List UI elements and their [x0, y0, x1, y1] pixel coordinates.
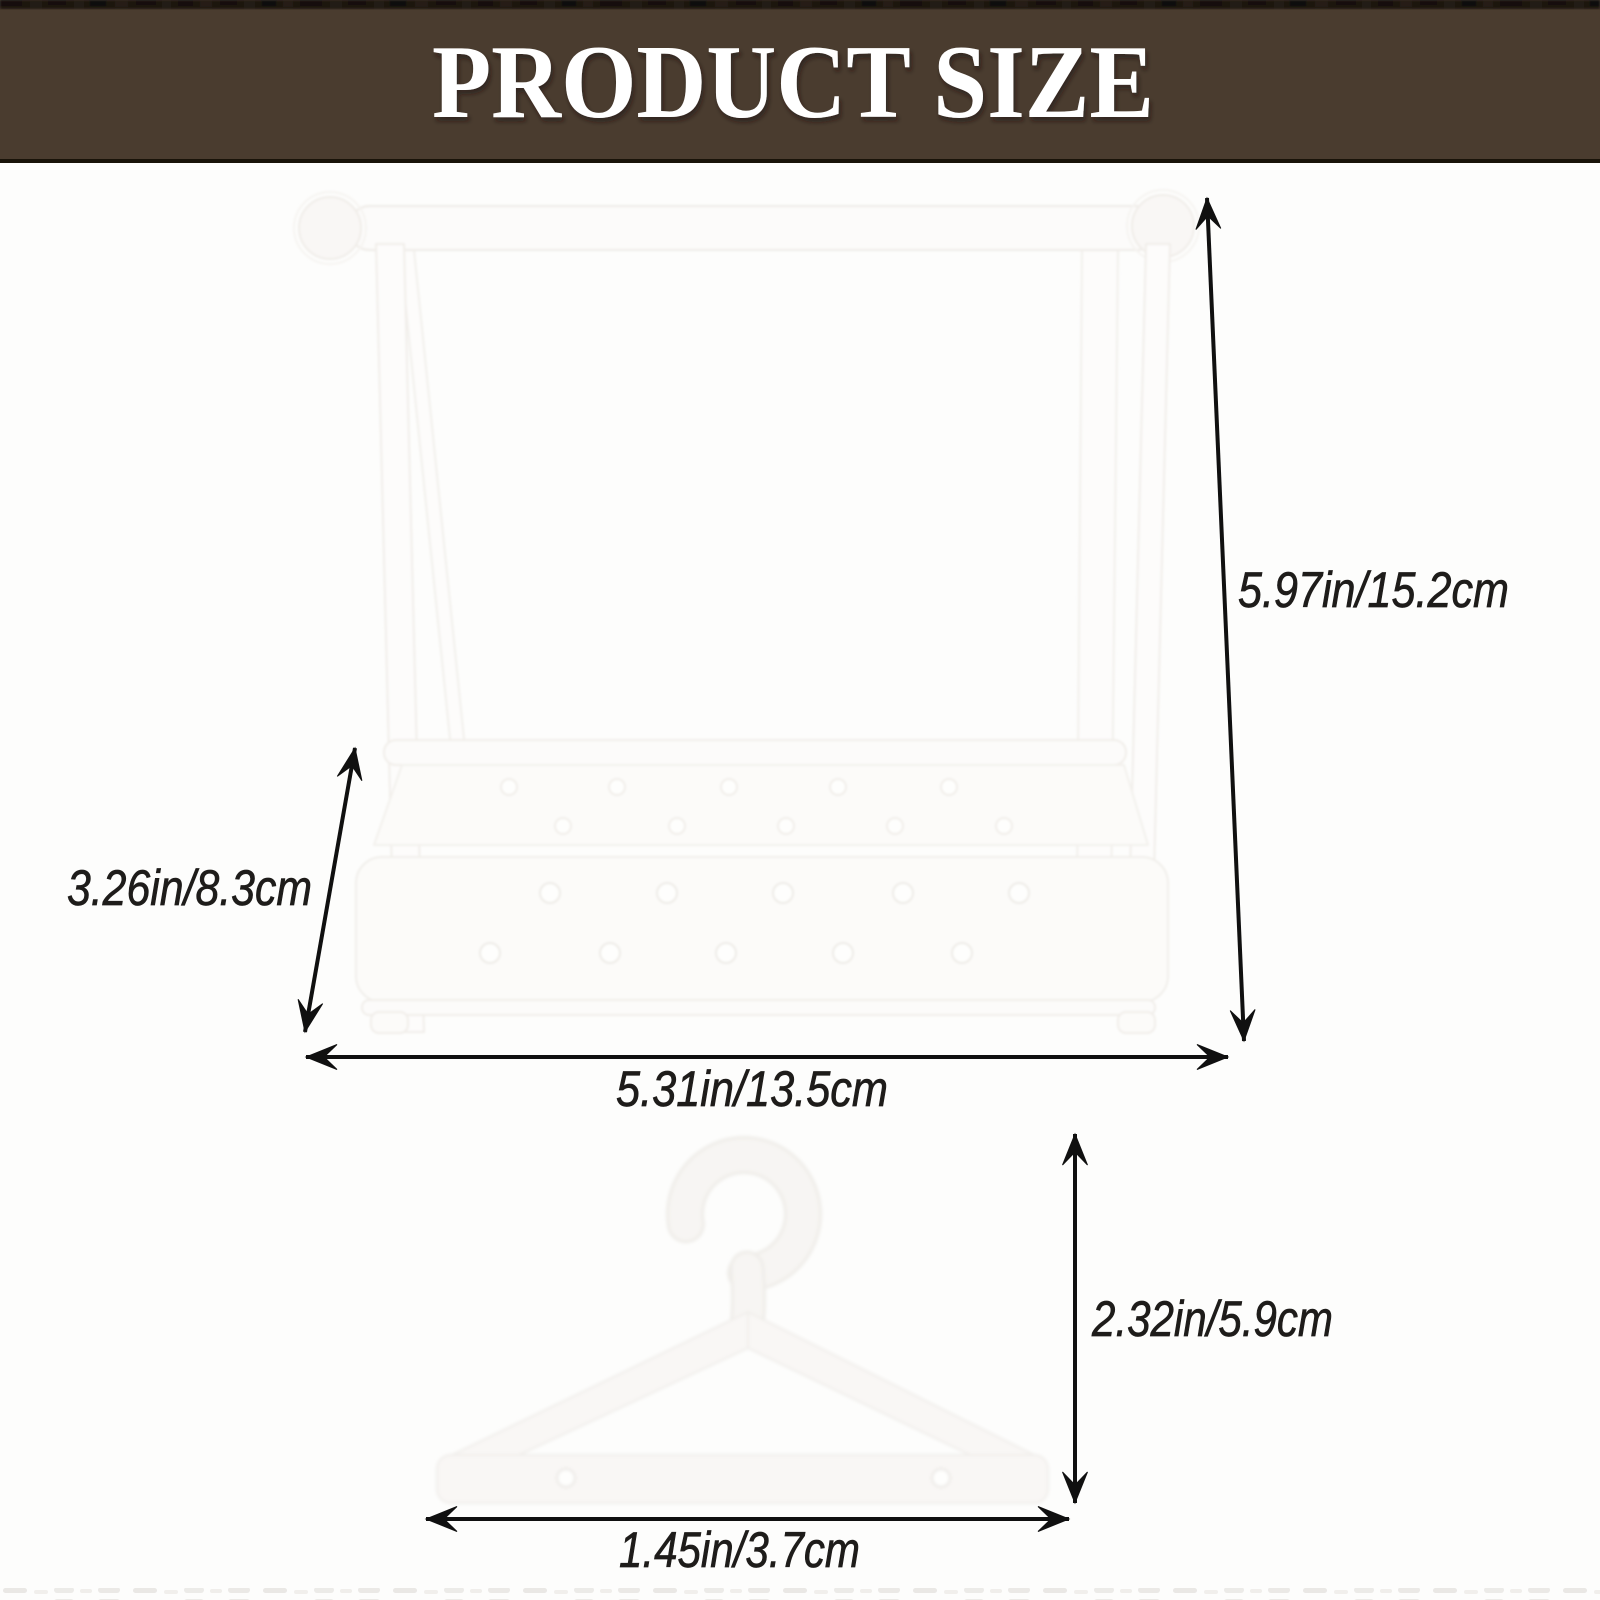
- svg-text:2.32in/5.9cm: 2.32in/5.9cm: [1091, 1291, 1333, 1347]
- svg-text:5.31in/13.5cm: 5.31in/13.5cm: [616, 1061, 888, 1117]
- svg-text:3.26in/8.3cm: 3.26in/8.3cm: [67, 860, 312, 916]
- svg-text:PRODUCT SIZE: PRODUCT SIZE: [432, 23, 1154, 140]
- svg-text:5.97in/15.2cm: 5.97in/15.2cm: [1238, 562, 1509, 618]
- svg-text:1.45in/3.7cm: 1.45in/3.7cm: [619, 1522, 860, 1578]
